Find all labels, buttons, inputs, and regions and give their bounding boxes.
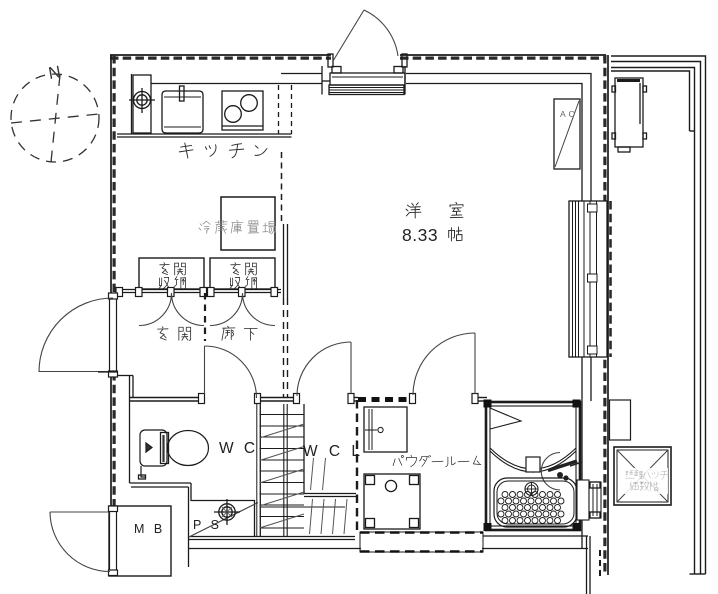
svg-text:8.33: 8.33: [402, 225, 438, 245]
svg-text:P S: P S: [193, 518, 222, 532]
svg-text:M B: M B: [134, 522, 165, 536]
svg-text:W C L: W C L: [303, 443, 364, 460]
svg-text:W C: W C: [219, 440, 258, 457]
svg-text:A C: A C: [560, 109, 575, 119]
